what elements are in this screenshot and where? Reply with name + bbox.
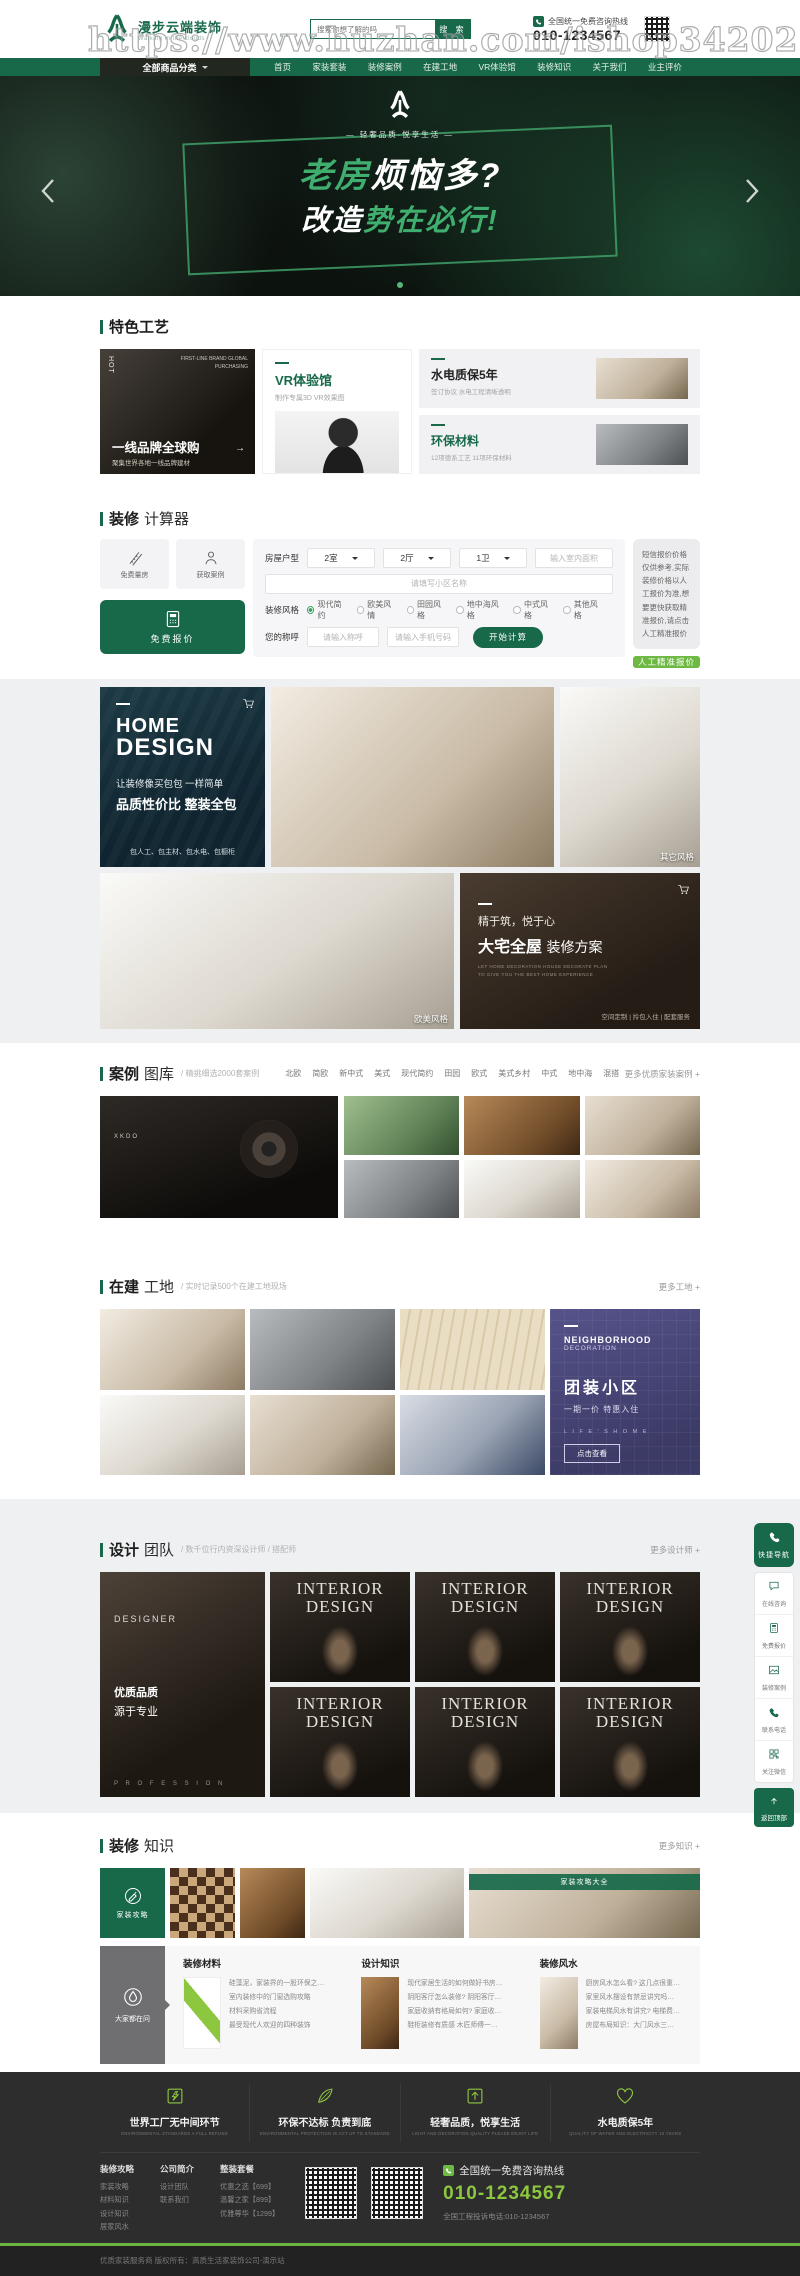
designers-title-bold: 设计 — [109, 1539, 139, 1560]
hot-label: HOT — [107, 356, 114, 374]
eco-title: 环保材料 — [431, 432, 596, 449]
dash-decor — [478, 903, 492, 905]
quick-nav-sidebar: 快捷导航 在线咨询 免费报价 装修案例 联系电话 关注微信 返回顶部 — [754, 1523, 794, 1827]
vr-title: VR体验馆 — [275, 370, 399, 389]
mansion-card[interactable]: 精于筑，悦于心 大宅全屋 装修方案 LET HOME DECORATION HO… — [460, 873, 700, 1029]
designers-title-light: 团队 — [144, 1539, 174, 1560]
footer-links-packages: 整装套餐 优惠之选【699】 温馨之家【899】 优雅尊华【1299】 — [220, 2163, 279, 2233]
feature-title: 轻奢品质，悦享生活 — [401, 2114, 550, 2129]
mansion-line2: 大宅全屋 装修方案 — [478, 933, 700, 957]
radio-dot-icon — [357, 606, 364, 614]
mansion-en-text: LET HOME DECORATION HOUSE DECORATE PLANT… — [478, 963, 700, 979]
title-bar — [100, 1067, 103, 1081]
style-radio-euroamerican[interactable]: 欧美风情 — [357, 599, 397, 621]
knowledge-banner-label: 家装攻略大全 — [469, 1874, 700, 1890]
site-photo[interactable] — [250, 1309, 395, 1390]
radio-dot-icon — [407, 606, 414, 614]
feature-en: QUALITY OF WATER AND ELECTRICITY 10 YEAR… — [551, 2131, 700, 2136]
style-radio-pastoral[interactable]: 田园风格 — [407, 599, 447, 621]
feature-en: LIGHT AND DECORATION QUALITY PLEASE ENJO… — [401, 2131, 550, 2136]
gallery-image[interactable] — [585, 1096, 700, 1155]
gallery-image[interactable] — [344, 1096, 459, 1155]
tab-european[interactable]: 欧式 — [471, 1068, 487, 1079]
showcase-section: HOME DESIGN 让装修像买包包 一样简单 品质性价比 整装全包 包人工、… — [0, 687, 800, 1029]
style-radio-modern[interactable]: 现代简约 — [307, 599, 347, 621]
eco-subtitle: 12项德系工艺 11项环保材料 — [431, 452, 596, 462]
brand-subtitle: 聚集世界各地一线品牌建材 — [112, 457, 190, 467]
footer-feature-factory: 世界工厂无中间环节 ENVIRONMENTAL STANDARDS A FULL… — [100, 2084, 249, 2142]
chevron-down-icon — [202, 66, 208, 72]
chat-icon — [768, 1580, 780, 1592]
start-calc-button[interactable]: 开始计算 — [473, 627, 543, 648]
designer-portrait[interactable]: INTERIORDESIGN — [270, 1687, 410, 1797]
free-quote-button[interactable]: 免费报价 — [100, 600, 245, 654]
designer-portrait[interactable]: INTERIORDESIGN — [560, 1687, 700, 1797]
home-design-line3: 包人工、包主材、包水电、包橱柜 — [100, 847, 265, 857]
col-title: 装修风水 — [540, 1956, 688, 1970]
footer-links-guide: 装修攻略 家装攻略 材料知识 设计知识 居家风水 — [100, 2163, 134, 2233]
tab-mediterranean[interactable]: 地中海 — [568, 1068, 592, 1079]
cart-icon — [242, 697, 255, 715]
gallery-image[interactable] — [585, 1160, 700, 1219]
person-icon — [202, 549, 220, 567]
footer-hotline: 全国统一免费咨询热线 010-1234567 全国工程投诉电话:010-1234… — [443, 2163, 566, 2233]
feature-title: 环保不达标 负责到底 — [250, 2114, 399, 2129]
more-cases-link[interactable]: 更多优质家装案例 + — [625, 1068, 700, 1080]
quote-form: 房屋户型 2室 2厅 1卫 装修风格 现代简约 欧美风情 田园风格 地中海风格 … — [253, 539, 625, 657]
hotline-number: 010-1234567 — [533, 27, 621, 43]
dash-decor — [116, 703, 130, 705]
water-photo — [596, 358, 688, 399]
neighborhood-title: 团装小区 — [564, 1374, 700, 1398]
calculator-section: 装修 计算器 免费量房 获取案例 免费报价 房屋户型 — [0, 492, 800, 679]
radio-dot-icon — [513, 606, 520, 614]
carousel-next-icon[interactable] — [744, 178, 760, 209]
copyright-text: 优质家装服务商 版权所有：高质生活家装饰公司-演示站 — [100, 2246, 700, 2276]
dash-decor — [431, 358, 445, 360]
more-knowledge-link[interactable]: 更多知识 + — [659, 1840, 700, 1852]
guide-card-label: 家装攻略 — [117, 1910, 149, 1920]
wall-art-decor — [240, 1120, 298, 1178]
more-sites-link[interactable]: 更多工地 + — [659, 1281, 700, 1293]
tab-pastoral[interactable]: 田园 — [444, 1068, 460, 1079]
knowledge-col-materials: 装修材料 硅藻泥，家装界的一股环保之… 室内装修中的门窗选购攻略 材料采购省流程… — [165, 1946, 343, 2064]
header-qr-code — [644, 16, 670, 42]
footer-complaint-line: 全国工程投诉电话:010-1234567 — [443, 2211, 566, 2222]
knowledge-title-bold: 装修 — [109, 1835, 139, 1856]
article-link[interactable]: 材料采购省流程 — [229, 2005, 324, 2019]
arrow-right-icon: → — [235, 443, 245, 454]
title-bar — [100, 320, 103, 334]
cases-section: 案例 图库 / 精挑细选2000套案例 北欧 简欧 新中式 美式 现代简约 田园… — [0, 1043, 800, 1499]
neighborhood-subtitle: 一期一价 特惠入住 — [564, 1404, 700, 1415]
chevron-down-icon — [504, 557, 510, 563]
style-radio-other[interactable]: 其他风格 — [563, 599, 603, 621]
chevron-down-icon — [352, 557, 358, 563]
free-measure-label: 免费量房 — [121, 570, 149, 580]
interior-design-text: INTERIORDESIGN — [415, 1580, 555, 1616]
article-link[interactable]: 硅藻泥，家装界的一股环保之… — [229, 1977, 324, 1991]
calculator-icon — [163, 609, 183, 629]
factory-icon — [165, 2086, 185, 2106]
phone-icon — [768, 1530, 781, 1543]
designer-line2: 源于专业 — [114, 1703, 251, 1719]
knowledge-col-design: 设计知识 现代家居生活的如何做好书房… 阴阳客厅怎么装修? 阴阳客厅… 家庭收纳… — [343, 1946, 521, 2064]
home-design-card[interactable]: HOME DESIGN 让装修像买包包 一样简单 品质性价比 整装全包 包人工、… — [100, 687, 265, 867]
cases-title-light: 图库 — [144, 1063, 174, 1084]
cases-title-bold: 案例 — [109, 1063, 139, 1084]
footer-hotline-label: 全国统一免费咨询热线 — [459, 2163, 564, 2178]
footer-link[interactable]: 优雅尊华【1299】 — [220, 2207, 279, 2220]
everyone-asks-card[interactable]: 大家都在问 — [100, 1946, 165, 2064]
knowledge-photo[interactable] — [170, 1868, 235, 1938]
radio-dot-icon — [456, 606, 464, 614]
page-footer: 世界工厂无中间环节 ENVIRONMENTAL STANDARDS A FULL… — [0, 2072, 800, 2276]
carousel-dot[interactable] — [397, 282, 403, 288]
footer-link[interactable]: 材料知识 — [100, 2193, 134, 2206]
cases-subtitle: / 精挑细选2000套案例 — [181, 1068, 259, 1079]
free-measure-button[interactable]: 免费量房 — [100, 539, 169, 589]
nav-item-vr[interactable]: VR体验馆 — [479, 58, 516, 76]
footer-link[interactable]: 温馨之家【899】 — [220, 2193, 279, 2206]
water-subtitle: 签订协议 水电工程清晰透明 — [431, 386, 596, 396]
article-link[interactable]: 房屋布局知识：大门风水三… — [586, 2019, 680, 2033]
eco-photo — [596, 424, 688, 465]
everyone-asks-label: 大家都在问 — [115, 2014, 150, 2024]
hotline-label: 全国统一免费咨询热线 — [548, 16, 628, 27]
banner-logo-icon — [383, 88, 417, 122]
home-design-line2: 品质性价比 整装全包 — [116, 794, 265, 813]
footer-link[interactable]: 联系我们 — [160, 2193, 194, 2206]
footer-link[interactable]: 设计团队 — [160, 2180, 194, 2193]
title-bar — [100, 512, 103, 526]
showcase-photo[interactable] — [271, 687, 554, 867]
nav-item-cases[interactable]: 装修案例 — [368, 58, 402, 76]
more-designers-link[interactable]: 更多设计师 + — [650, 1544, 700, 1556]
halls-select[interactable]: 2厅 — [383, 548, 451, 568]
gallery-image[interactable]: XKDO — [100, 1096, 338, 1218]
footer-link[interactable]: 居家风水 — [100, 2220, 134, 2233]
phone-icon — [443, 2165, 454, 2176]
knowledge-col-fengshui: 装修风水 厨房风水怎么看? 这几点很重… 家里风水摆设有禁忌讲究吗… 家装电梯风… — [522, 1946, 700, 2064]
feature-en: ENVIRONMENTAL STANDARDS A FULL REFUND — [100, 2131, 249, 2136]
style-label: 装修风格 — [265, 604, 307, 616]
home-design-line1: 让装修像买包包 一样简单 — [116, 776, 265, 790]
calc-title-bold: 装修 — [109, 508, 139, 529]
sites-title-light: 工地 — [144, 1276, 174, 1297]
footer-link[interactable]: 设计知识 — [100, 2207, 134, 2220]
footer-link[interactable]: 家装攻略 — [100, 2180, 134, 2193]
feature-title: 水电质保5年 — [551, 2114, 700, 2129]
title-bar — [100, 1839, 103, 1853]
vr-photo — [275, 411, 399, 473]
nav-item-reviews[interactable]: 业主评价 — [648, 58, 682, 76]
article-link[interactable]: 家里风水摆设有禁忌讲究吗… — [586, 1991, 680, 2005]
designers-subtitle: / 数千位行内资深设计师 / 搭配师 — [181, 1544, 296, 1555]
interior-design-text: INTERIORDESIGN — [270, 1695, 410, 1731]
title-bar — [100, 1543, 103, 1557]
feature-brand-card[interactable]: HOT FIRST-LINE BRAND GLOBAL PURCHASING 一… — [100, 349, 255, 474]
water-title: 水电质保5年 — [431, 366, 596, 383]
link-group-title: 公司简介 — [160, 2163, 194, 2175]
phone-icon — [768, 1706, 780, 1718]
article-link[interactable]: 最受现代人欢迎的四种装饰 — [229, 2019, 324, 2033]
radio-dot-icon — [307, 606, 314, 614]
get-cases-label: 获取案例 — [197, 570, 225, 580]
article-link[interactable]: 厨房风水怎么看? 这几点很重… — [586, 1977, 680, 1991]
article-link[interactable]: 阴阳客厅怎么装修? 阴阳客厅… — [407, 1991, 502, 2005]
quicknav-wechat[interactable]: 关注微信 — [755, 1741, 793, 1782]
nav-item-sites[interactable]: 在建工地 — [423, 58, 457, 76]
calc-title-light: 计算器 — [144, 508, 189, 529]
article-link[interactable]: 家庭收纳有格局如何? 家庭收… — [407, 2005, 502, 2019]
footer-qr-code — [371, 2167, 423, 2219]
feature-water-card[interactable]: 水电质保5年 签订协议 水电工程清晰透明 — [419, 349, 700, 408]
article-link[interactable]: 现代家居生活的如何做好书房… — [407, 1977, 502, 1991]
copyright-bar: 优质家装服务商 版权所有：高质生活家装饰公司-演示站 — [0, 2246, 800, 2276]
showcase-photo[interactable]: 其它风格 — [560, 687, 700, 867]
quicknav-cases[interactable]: 装修案例 — [755, 1657, 793, 1699]
tab-modern[interactable]: 现代简约 — [401, 1068, 433, 1079]
designer-footer-text: P R O F E S S I O N — [114, 1781, 225, 1787]
logo-title: 漫步云端装饰 — [138, 17, 222, 36]
link-group-title: 整装套餐 — [220, 2163, 279, 2175]
footer-feature-quality: 轻奢品质，悦享生活 LIGHT AND DECORATION QUALITY P… — [400, 2084, 550, 2142]
case-style-tabs: 北欧 简欧 新中式 美式 现代简约 田园 欧式 美式乡村 中式 地中海 混搭 — [285, 1068, 619, 1079]
neighborhood-en3: L I F E ' S H O M E — [564, 1429, 700, 1435]
brand-en-text: FIRST-LINE BRAND GLOBAL PURCHASING — [178, 356, 248, 371]
home-design-title2: DESIGN — [116, 734, 265, 762]
free-quote-label: 免费报价 — [150, 632, 194, 645]
mansion-links[interactable]: 空间定制 | 拎包入住 | 配套服务 — [601, 1011, 690, 1021]
tab-simple-euro[interactable]: 简欧 — [312, 1068, 328, 1079]
header-hotline: 全国统一免费咨询热线 010-1234567 — [533, 16, 628, 43]
showcase-photo[interactable]: 欧美风格 — [100, 873, 454, 1029]
style-radio-chinese[interactable]: 中式风格 — [513, 599, 553, 621]
hero-banner: — 轻奢品质·悦享生活 — 老房烦恼多? 改造势在必行! — [0, 76, 800, 296]
search-button[interactable]: 搜 索 — [435, 19, 471, 39]
arrow-up-icon — [769, 1796, 779, 1806]
footer-links-company: 公司简介 设计团队 联系我们 — [160, 2163, 194, 2233]
quick-nav-title: 快捷导航 — [754, 1550, 794, 1560]
knowledge-photo[interactable]: 家装攻略大全 — [469, 1868, 700, 1938]
mansion-line1: 精于筑，悦于心 — [478, 913, 700, 929]
footer-link[interactable]: 优惠之选【699】 — [220, 2180, 279, 2193]
guide-card[interactable]: 家装攻略 — [100, 1868, 165, 1938]
wall-text: XKDO — [114, 1134, 139, 1140]
col-title: 装修材料 — [183, 1956, 331, 1970]
title-bar — [100, 1280, 103, 1294]
rooms-select[interactable]: 2室 — [307, 548, 375, 568]
footer-divider — [100, 2152, 700, 2153]
picture-icon — [768, 1664, 780, 1676]
gallery-image[interactable] — [464, 1160, 579, 1219]
community-input[interactable] — [265, 574, 613, 594]
radio-dot-icon — [563, 606, 570, 614]
designer-portrait[interactable]: INTERIORDESIGN — [270, 1572, 410, 1682]
name-input[interactable] — [307, 627, 379, 647]
knowledge-photo[interactable] — [310, 1868, 464, 1938]
vr-subtitle: 制作专属3D VR效果图 — [275, 393, 399, 403]
name-label: 您的称呼 — [265, 631, 307, 643]
link-group-title: 装修攻略 — [100, 2163, 134, 2175]
interior-design-text: INTERIORDESIGN — [560, 1580, 700, 1616]
sites-title-bold: 在建 — [109, 1276, 139, 1297]
box-arrow-icon — [465, 2086, 485, 2106]
banner-title-line2: 改造势在必行! — [0, 197, 800, 239]
dash-decor — [564, 1325, 578, 1327]
gallery-image[interactable] — [464, 1096, 579, 1155]
site-photo[interactable] — [250, 1395, 395, 1476]
designer-line1: 优质品质 — [114, 1684, 251, 1700]
site-photo[interactable] — [100, 1395, 245, 1476]
feature-vr-card[interactable]: VR体验馆 制作专属3D VR效果图 — [262, 349, 412, 474]
article-link[interactable]: 家装电梯风水有讲究? 电梯费… — [586, 2005, 680, 2019]
logo-subtitle: Walking in the clouds — [138, 36, 222, 42]
baths-select[interactable]: 1卫 — [459, 548, 527, 568]
designer-portrait[interactable]: INTERIORDESIGN — [560, 1572, 700, 1682]
quicknav-chat[interactable]: 在线咨询 — [755, 1573, 793, 1615]
article-image — [540, 1977, 578, 2049]
designers-section: 设计 团队 / 数千位行内资深设计师 / 搭配师 更多设计师 + DESIGNE… — [0, 1499, 800, 1813]
nav-item-knowledge[interactable]: 装修知识 — [537, 58, 571, 76]
gallery-image[interactable] — [344, 1160, 459, 1219]
site-photo[interactable] — [400, 1395, 545, 1476]
designer-en-label: DESIGNER — [114, 1614, 251, 1624]
footer-hotline-number: 010-1234567 — [443, 2183, 566, 2205]
top-header: 漫步云端装饰 Walking in the clouds 搜 索 全国统一免费咨… — [0, 0, 800, 58]
quick-nav-tab[interactable]: 快捷导航 — [754, 1523, 794, 1567]
heart-icon — [615, 2086, 635, 2106]
quote-note-text: 短信报价价格仅供参考,实际装修价格以人工报价为准,想要更快获取精准报价,请点击人… — [633, 539, 700, 649]
dash-decor — [275, 362, 289, 364]
designer-portrait[interactable]: INTERIORDESIGN — [415, 1572, 555, 1682]
quicknav-quote[interactable]: 免费报价 — [755, 1615, 793, 1657]
phone-input[interactable] — [387, 627, 459, 647]
footer-qr-code — [305, 2167, 357, 2219]
interior-design-text: INTERIORDESIGN — [560, 1695, 700, 1731]
leaf-icon — [315, 2086, 335, 2106]
feature-en: ENVIRONMENTAL PROTECTION IS ACT UP TO ST… — [250, 2131, 399, 2136]
view-button[interactable]: 点击查看 — [564, 1444, 620, 1463]
phone-icon — [533, 16, 544, 27]
site-photo[interactable] — [400, 1309, 545, 1390]
main-nav: 全部商品分类 首页 家装套装 装修案例 在建工地 VR体验馆 装修知识 关于我们… — [0, 58, 800, 76]
tab-chinese[interactable]: 中式 — [541, 1068, 557, 1079]
designer-portrait[interactable]: INTERIORDESIGN — [415, 1687, 555, 1797]
site-photo[interactable] — [100, 1309, 245, 1390]
all-categories-button[interactable]: 全部商品分类 — [100, 58, 250, 76]
nav-item-packages[interactable]: 家装套装 — [312, 58, 346, 76]
footer-feature-warranty: 水电质保5年 QUALITY OF WATER AND ELECTRICITY … — [550, 2084, 700, 2142]
nav-item-home[interactable]: 首页 — [274, 58, 291, 76]
footer-feature-eco: 环保不达标 负责到底 ENVIRONMENTAL PROTECTION IS A… — [249, 2084, 399, 2142]
tab-nordic[interactable]: 北欧 — [285, 1068, 301, 1079]
designer-intro-card[interactable]: DESIGNER 优质品质 源于专业 P R O F E S S I O N — [100, 1572, 265, 1797]
article-image — [361, 1977, 399, 2049]
banner-title-line1: 老房烦恼多? — [0, 148, 800, 197]
feature-title: 世界工厂无中间环节 — [100, 2114, 249, 2129]
drop-icon — [122, 1986, 144, 2008]
dash-decor — [431, 424, 445, 426]
tab-american[interactable]: 美式 — [374, 1068, 390, 1079]
feature-eco-card[interactable]: 环保材料 12项德系工艺 11项环保材料 — [419, 415, 700, 474]
neighborhood-en1: NEIGHBORHOOD — [564, 1335, 700, 1345]
tab-mixed[interactable]: 混搭 — [603, 1068, 619, 1079]
brand-title: 一线品牌全球购 — [112, 437, 200, 456]
nav-item-about[interactable]: 关于我们 — [593, 58, 627, 76]
get-cases-button[interactable]: 获取案例 — [176, 539, 245, 589]
ruler-icon — [126, 549, 144, 567]
features-title: 特色工艺 — [109, 316, 169, 337]
qr-icon — [768, 1748, 780, 1760]
all-categories-label: 全部商品分类 — [142, 61, 196, 74]
back-to-top-button[interactable]: 返回顶部 — [754, 1788, 794, 1827]
article-link[interactable]: 室内装修中的门窗选购攻略 — [229, 1991, 324, 2005]
carousel-prev-icon[interactable] — [40, 178, 56, 209]
sites-subtitle: / 实时记录500个在建工地现场 — [181, 1281, 287, 1292]
manual-quote-button[interactable]: 人工精准报价 — [633, 656, 700, 668]
neighborhood-en2: DECORATION — [564, 1345, 700, 1352]
features-section: 特色工艺 HOT FIRST-LINE BRAND GLOBAL PURCHAS… — [0, 296, 800, 492]
calculator-icon — [768, 1622, 780, 1634]
banner-tagline: — 轻奢品质·悦享生活 — — [0, 129, 800, 140]
logo-icon — [100, 12, 134, 46]
house-type-label: 房屋户型 — [265, 552, 307, 564]
col-title: 设计知识 — [361, 1956, 509, 1970]
neighborhood-card[interactable]: NEIGHBORHOOD DECORATION 团装小区 一期一价 特惠入住 L… — [550, 1309, 700, 1475]
interior-design-text: INTERIORDESIGN — [270, 1580, 410, 1616]
tab-country[interactable]: 美式乡村 — [498, 1068, 530, 1079]
chevron-down-icon — [428, 557, 434, 563]
knowledge-section: 装修 知识 更多知识 + 家装攻略 家装攻略大全 大家都在问 装修材料 — [0, 1813, 800, 2072]
area-input[interactable] — [535, 548, 613, 568]
search-bar: 搜 索 — [310, 19, 471, 39]
search-input[interactable] — [310, 19, 435, 39]
interior-design-text: INTERIORDESIGN — [415, 1695, 555, 1731]
knowledge-photo[interactable] — [240, 1868, 305, 1938]
brush-icon — [123, 1886, 143, 1906]
cart-icon — [677, 883, 690, 901]
article-link[interactable]: 鞋柜装修有质感 木匠师傅一… — [407, 2019, 502, 2033]
quicknav-phone[interactable]: 联系电话 — [755, 1699, 793, 1741]
tab-new-chinese[interactable]: 新中式 — [339, 1068, 363, 1079]
knowledge-title-light: 知识 — [144, 1835, 174, 1856]
style-tag: 欧美风格 — [414, 1013, 448, 1025]
style-radio-mediterranean[interactable]: 地中海风格 — [456, 599, 503, 621]
site-logo[interactable]: 漫步云端装饰 Walking in the clouds — [100, 12, 222, 46]
paint-roller-image — [183, 1977, 221, 2049]
style-tag: 其它风格 — [660, 851, 694, 863]
